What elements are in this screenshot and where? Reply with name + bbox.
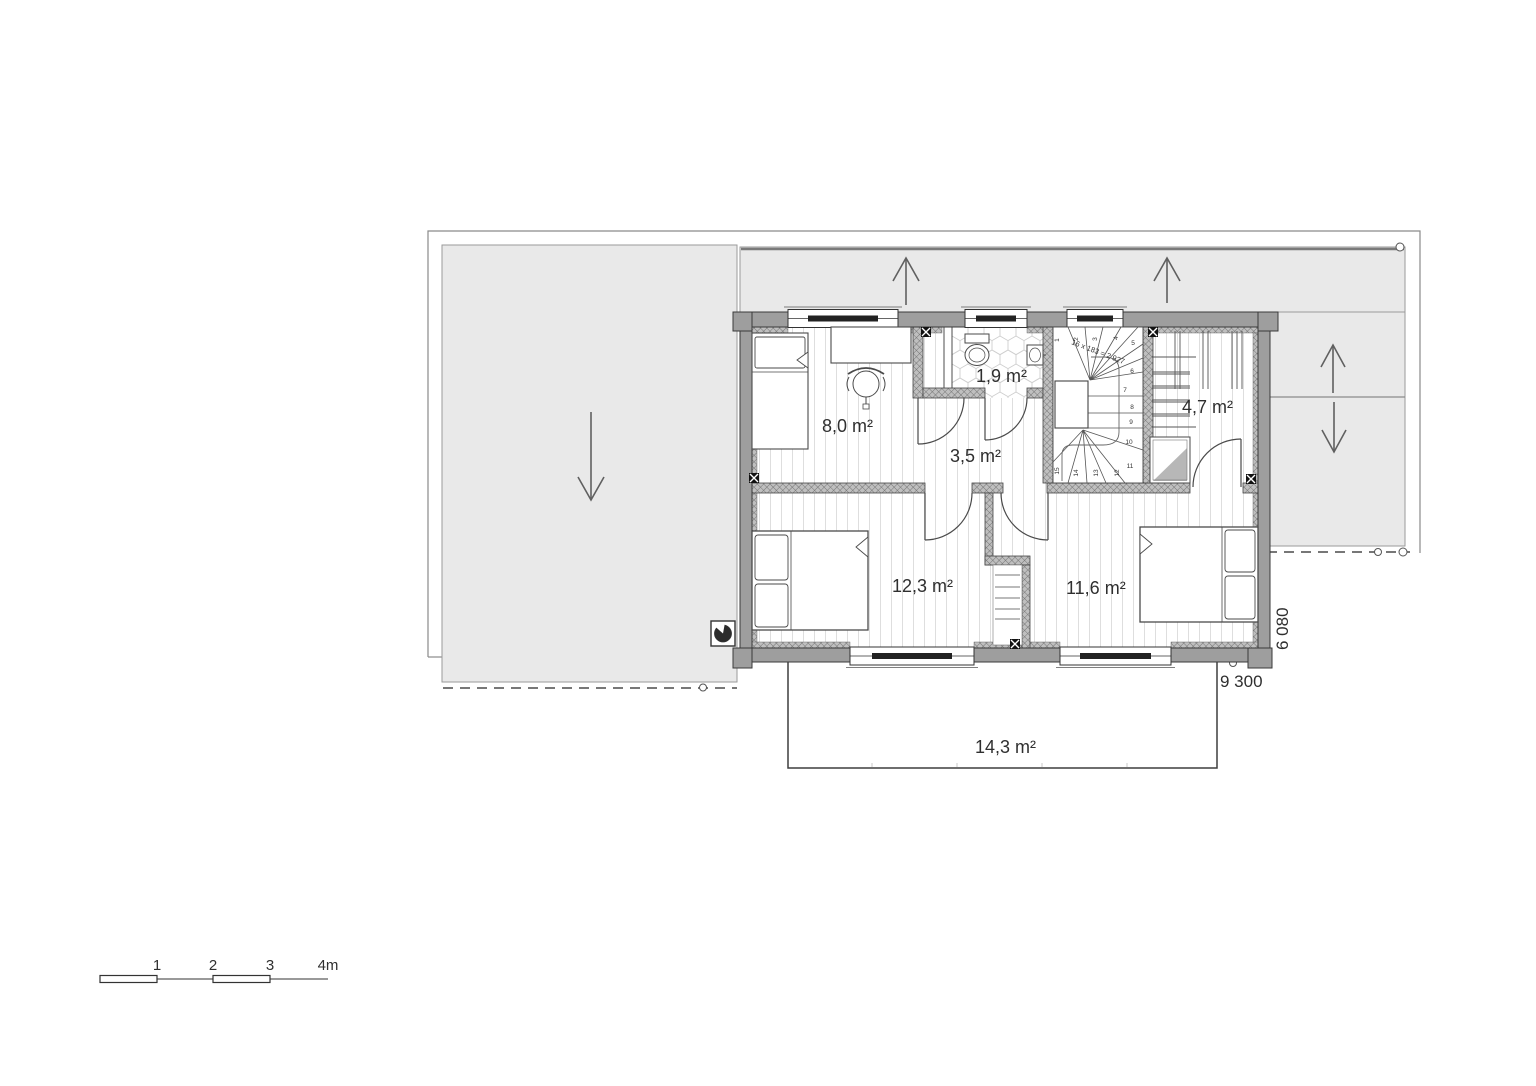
toilet xyxy=(965,334,989,366)
step-number: 6 xyxy=(1130,368,1134,375)
storage-cabinet xyxy=(1150,437,1190,483)
step-number: 9 xyxy=(1129,419,1133,426)
room-label-bedroom-right: 11,6 m² xyxy=(1066,578,1126,598)
double-bed-left xyxy=(752,531,868,630)
window xyxy=(961,307,1031,328)
window xyxy=(784,307,902,328)
single-bed xyxy=(752,333,808,449)
staircase: 1 2 3 4 5 6 7 8 9 10 11 12 13 14 15 16 x… xyxy=(1053,327,1143,483)
step-number: 4 xyxy=(1113,336,1120,340)
scale-tick-1: 1 xyxy=(153,957,161,974)
double-bed-right xyxy=(1140,527,1258,622)
step-number: 8 xyxy=(1130,404,1134,411)
post-icon xyxy=(1010,639,1020,649)
dimension-height: 6 080 xyxy=(1273,607,1292,650)
scale-bar: 1 2 3 4m xyxy=(100,957,338,983)
room-label-hallway: 3,5 m² xyxy=(950,446,1001,466)
step-number: 3 xyxy=(1092,337,1099,341)
post-icon xyxy=(1246,474,1256,484)
room-label-bathroom: 1,9 m² xyxy=(976,366,1027,386)
step-number: 13 xyxy=(1093,469,1100,477)
step-number: 7 xyxy=(1123,387,1127,394)
step-number: 11 xyxy=(1127,463,1134,470)
chimney-icon xyxy=(711,621,735,646)
ladder-shaft xyxy=(993,565,1022,645)
post-icon xyxy=(921,327,931,337)
post-icon xyxy=(1148,327,1158,337)
step-number: 10 xyxy=(1125,439,1133,446)
desk xyxy=(831,327,911,363)
room-label-bedroom-left: 12,3 m² xyxy=(892,576,953,596)
floor-plan-page: 1 2 3 4 5 6 7 8 9 10 11 12 13 14 15 16 x… xyxy=(0,0,1536,1086)
step-number: 12 xyxy=(1114,469,1121,477)
dimension-width: 9 300 xyxy=(1220,672,1263,691)
left-roof-area xyxy=(442,245,737,682)
step-number: 5 xyxy=(1131,340,1135,347)
bathroom-left-wall xyxy=(944,325,952,392)
top-roof-band xyxy=(740,247,1405,312)
sink xyxy=(1027,345,1046,365)
wall-bottom xyxy=(740,648,1270,662)
wall-right xyxy=(1258,312,1270,662)
step-number: 1 xyxy=(1054,338,1061,342)
right-roof-area xyxy=(1270,312,1405,546)
scale-tick-4m: 4m xyxy=(318,957,339,974)
stair-void xyxy=(1055,381,1088,428)
scale-tick-3: 3 xyxy=(266,957,274,974)
room-label-storage: 4,7 m² xyxy=(1182,397,1233,417)
step-number: 14 xyxy=(1073,469,1080,477)
scale-tick-2: 2 xyxy=(209,957,217,974)
window xyxy=(1063,307,1127,328)
wall-left xyxy=(740,312,752,662)
room-label-bedroom-small: 8,0 m² xyxy=(822,416,873,436)
floor-plan-drawing: 1 2 3 4 5 6 7 8 9 10 11 12 13 14 15 16 x… xyxy=(0,0,1536,1086)
step-number: 15 xyxy=(1054,467,1061,475)
post-icon xyxy=(749,473,759,483)
room-label-balcony: 14,3 m² xyxy=(975,737,1036,757)
window xyxy=(1056,647,1175,668)
window xyxy=(846,647,978,668)
